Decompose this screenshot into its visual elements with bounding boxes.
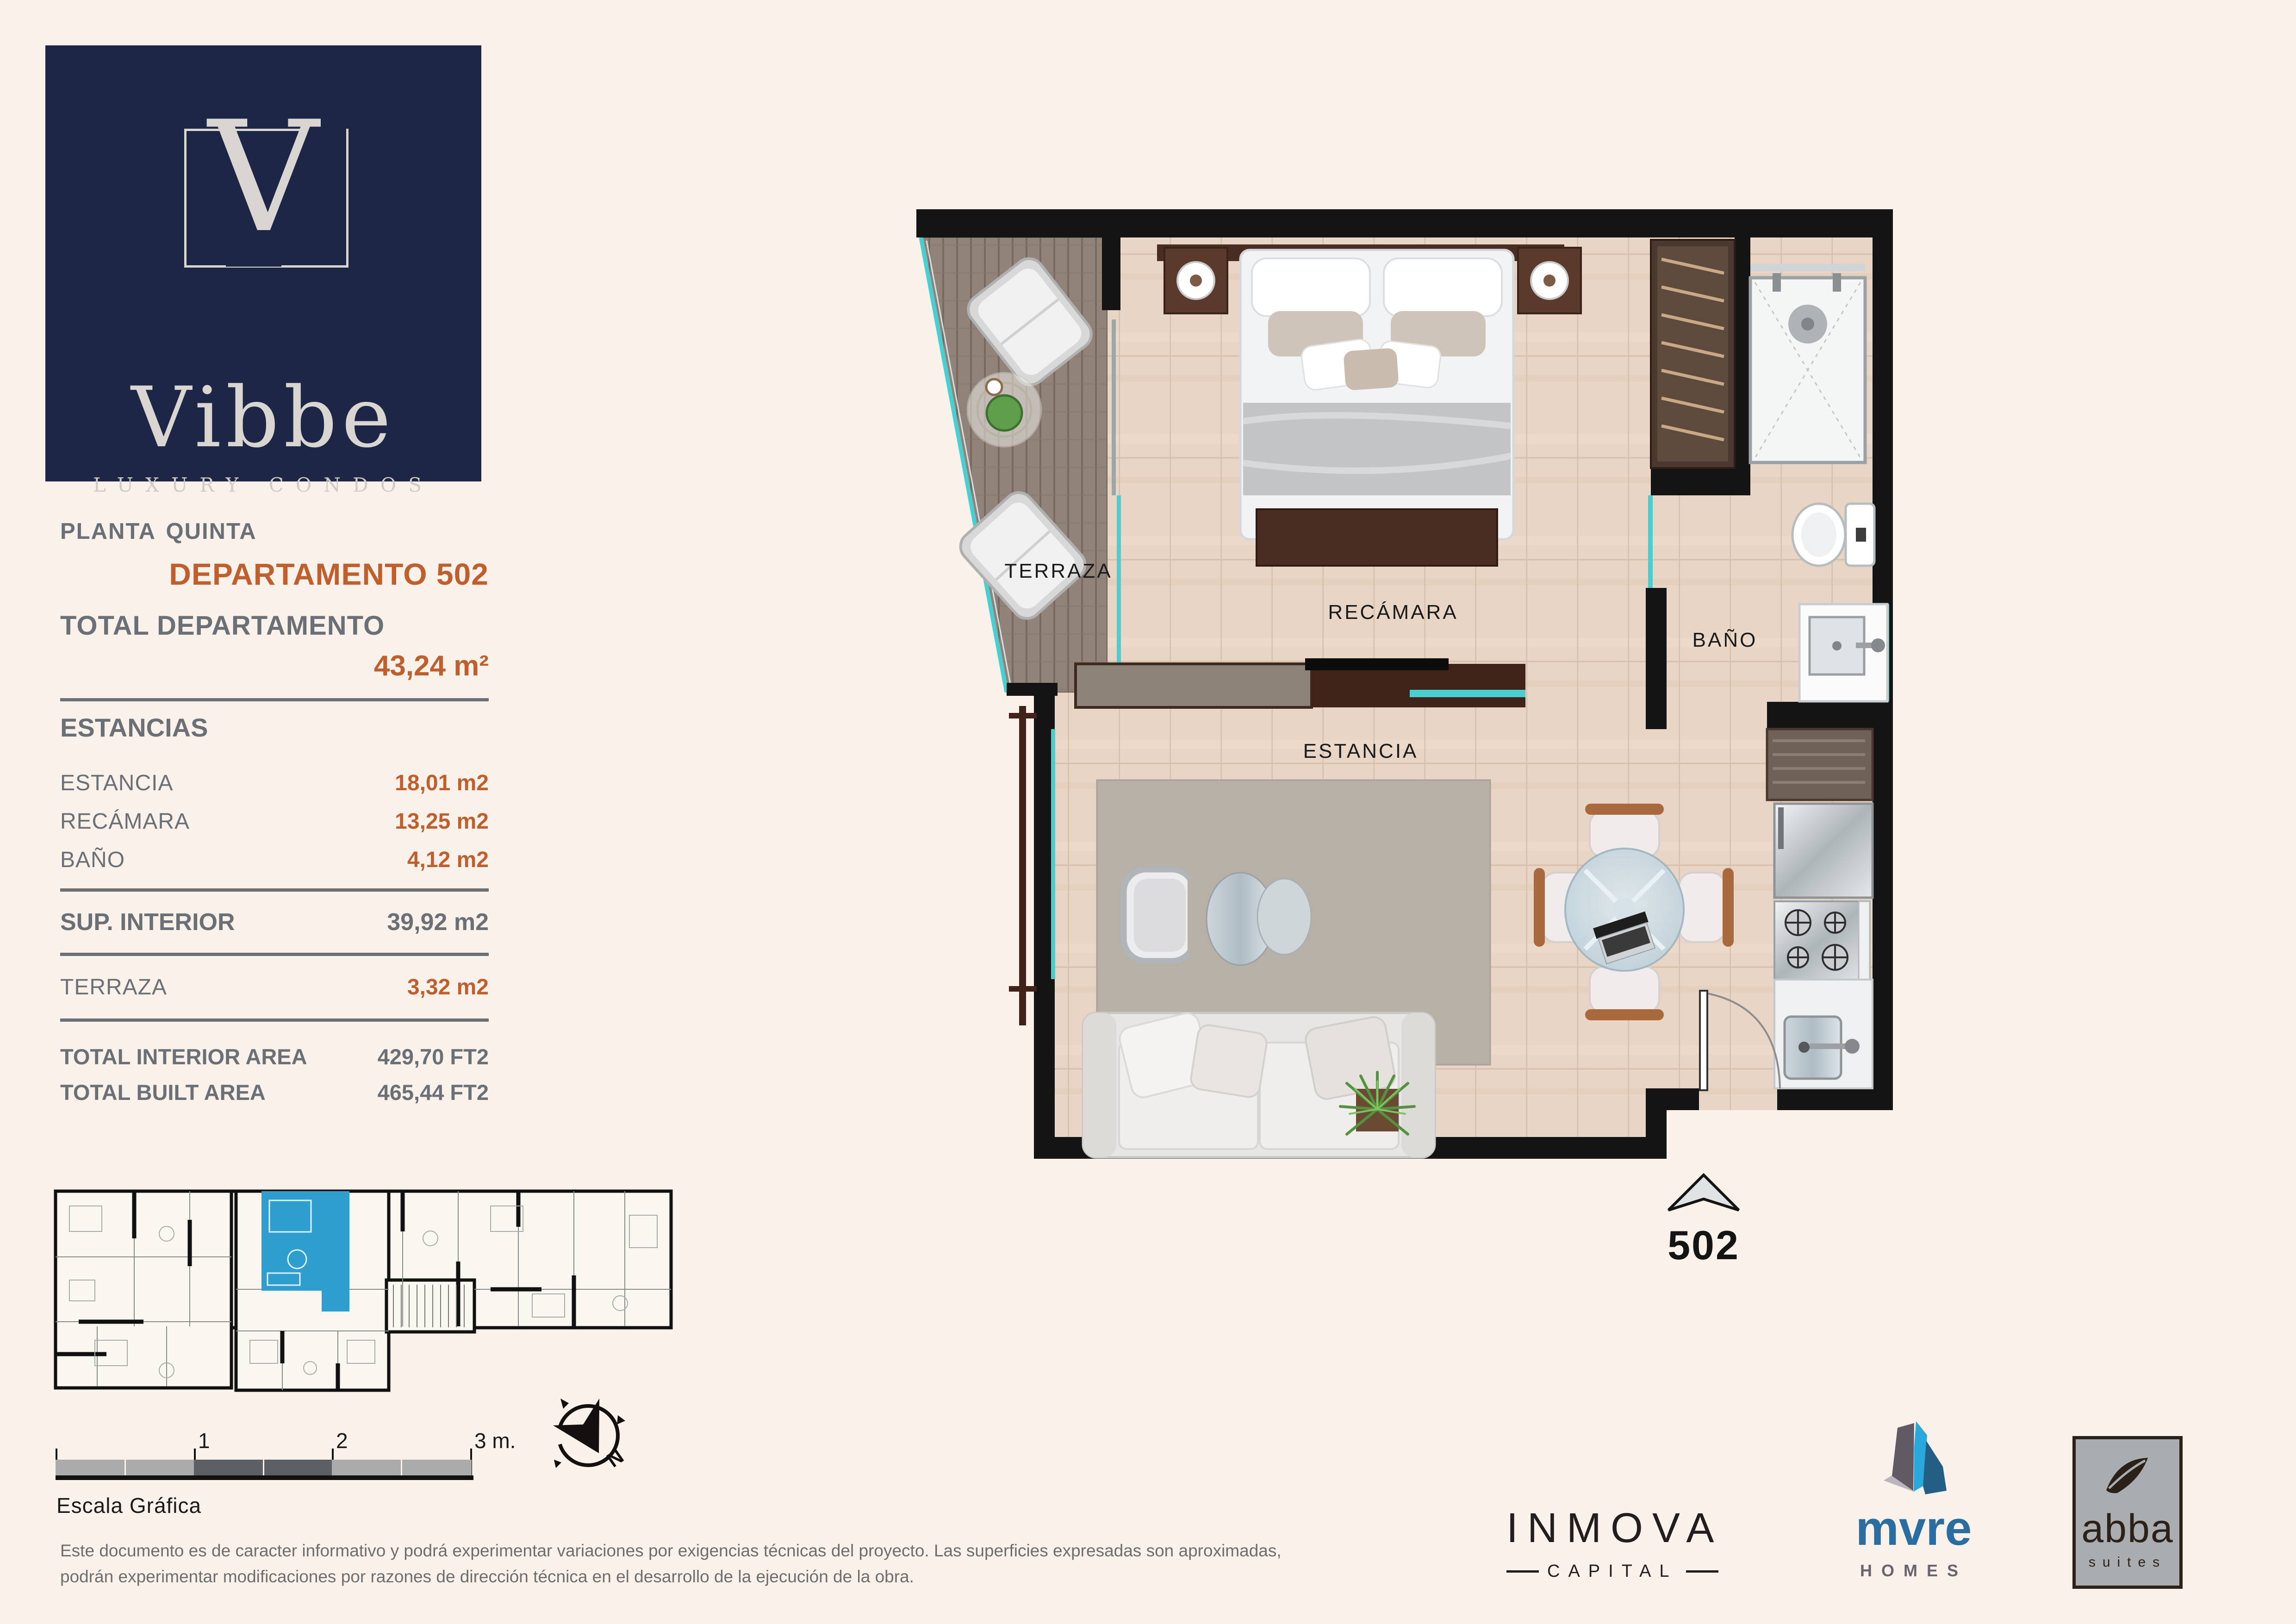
total-built-row: TOTAL BUILT AREA 465,44 FT2 bbox=[60, 1080, 489, 1105]
terrace-area-row: TERRAZA 3,32 m2 bbox=[60, 974, 489, 1000]
disclaimer: Este documento es de caracter informativ… bbox=[60, 1538, 1518, 1589]
total-interior-row: TOTAL INTERIOR AREA 429,70 FT2 bbox=[60, 1044, 489, 1069]
unit-title: DEPARTAMENTO 502 bbox=[60, 556, 489, 592]
tv-console bbox=[1076, 658, 1525, 707]
divider bbox=[60, 1018, 489, 1022]
vibbe-logo: V Vibbe LUXURY CONDOS bbox=[45, 45, 481, 481]
terrace-table bbox=[967, 373, 1041, 447]
toilet bbox=[1792, 504, 1874, 566]
brand-tagline: LUXURY CONDOS bbox=[45, 474, 481, 496]
scale-tick-label: 1 bbox=[198, 1428, 210, 1453]
stove bbox=[1774, 901, 1870, 980]
sofa bbox=[1083, 1011, 1435, 1157]
brand-name: Vibbe bbox=[45, 369, 481, 466]
unit-floor-plan: TERRAZA RECÁMARA BAÑO ESTANCIA 502 bbox=[916, 204, 1916, 1282]
coffee-table-2 bbox=[1257, 879, 1311, 955]
graphic-scale: 1 2 3 m. Escala Gráfica bbox=[56, 1428, 565, 1530]
kitchen bbox=[1767, 729, 1873, 1088]
label-bano: BAÑO bbox=[1692, 628, 1758, 651]
unit-entry-marker: 502 bbox=[1668, 1175, 1740, 1268]
label-estancia: ESTANCIA bbox=[1303, 740, 1419, 762]
abba-leaf-icon bbox=[2100, 1451, 2155, 1500]
mvre-mountain-icon bbox=[1870, 1421, 1958, 1502]
interior-area-row: SUP. INTERIOR 39,92 m2 bbox=[60, 908, 489, 936]
unit-info-panel: Planta Quinta DEPARTAMENTO 502 TOTAL DEP… bbox=[60, 509, 489, 1115]
total-value: 43,24 m² bbox=[60, 650, 489, 682]
divider bbox=[60, 888, 489, 892]
inmova-capital-logo: INMOVA CAPITAL bbox=[1506, 1505, 1766, 1581]
room-row-recamara: RECÁMARA 13,25 m2 bbox=[60, 809, 489, 834]
divider bbox=[60, 698, 489, 701]
mvre-homes-logo: mvre HOMES bbox=[1840, 1421, 1988, 1580]
room-area-list: ESTANCIA 18,01 m2 RECÁMARA 13,25 m2 BAÑO… bbox=[60, 770, 489, 873]
total-label: TOTAL DEPARTAMENTO bbox=[60, 610, 489, 641]
living-area bbox=[1083, 780, 1490, 1157]
fridge bbox=[1774, 804, 1873, 898]
shower bbox=[1750, 264, 1865, 462]
nightstand-left bbox=[1164, 248, 1227, 313]
bed-bench bbox=[1257, 509, 1497, 566]
scale-tick-label: 3 m. bbox=[474, 1428, 516, 1453]
balcony-divider bbox=[1009, 706, 1037, 1025]
closet bbox=[1651, 240, 1735, 468]
armchair bbox=[1124, 869, 1198, 961]
scale-tick-label: 2 bbox=[336, 1428, 348, 1453]
room-row-estancia: ESTANCIA 18,01 m2 bbox=[60, 770, 489, 796]
compass-north-label: N bbox=[603, 1445, 628, 1472]
label-terraza: TERRAZA bbox=[1004, 560, 1112, 582]
unit-number: 502 bbox=[1668, 1222, 1740, 1268]
divider bbox=[60, 953, 489, 956]
label-recamara: RECÁMARA bbox=[1328, 601, 1458, 624]
room-row-bano: BAÑO 4,12 m2 bbox=[60, 847, 489, 873]
scale-caption: Escala Gráfica bbox=[56, 1493, 201, 1518]
bed bbox=[1240, 250, 1513, 539]
estancias-heading: ESTANCIAS bbox=[60, 712, 489, 743]
abba-suites-logo: abba suites bbox=[2072, 1436, 2183, 1589]
bathroom-vanity bbox=[1799, 604, 1887, 701]
brochure-page: V Vibbe LUXURY CONDOS Planta Quinta DEPA… bbox=[0, 0, 2296, 1624]
kitchen-sink bbox=[1774, 980, 1873, 1088]
logo-v-monogram: V bbox=[45, 101, 481, 254]
north-compass: N bbox=[540, 1387, 639, 1486]
totals-list: TOTAL INTERIOR AREA 429,70 FT2 TOTAL BUI… bbox=[60, 1044, 489, 1105]
floor-title: Planta Quinta bbox=[60, 509, 489, 546]
nightstand-right bbox=[1518, 248, 1581, 313]
